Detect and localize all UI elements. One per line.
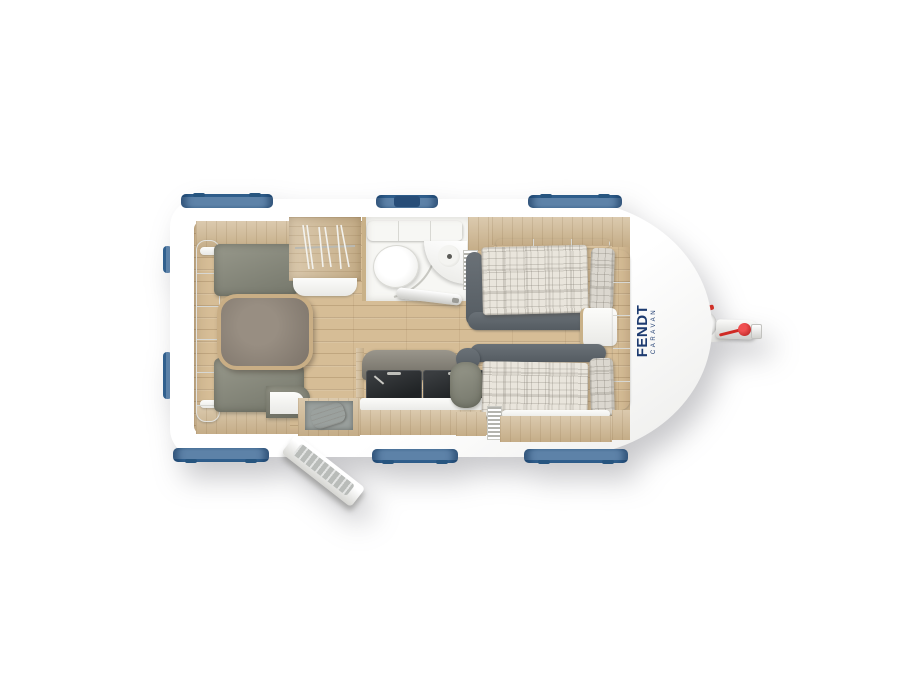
window-hinge-icon xyxy=(602,460,614,464)
window-bottom-front xyxy=(524,449,628,463)
washroom-top-cabinet xyxy=(367,221,463,241)
red-coupling-knob xyxy=(738,323,751,336)
corner-cabinet-bottom-front xyxy=(612,410,630,440)
brand-subtitle: CARAVAN xyxy=(651,308,658,354)
pillow-bed-bottom xyxy=(589,358,615,417)
rooflight-glass-icon xyxy=(394,196,420,207)
window-hinge-icon xyxy=(249,193,261,197)
caravan-floorplan-scene: FENDT CARAVAN xyxy=(0,0,906,680)
window-top-front xyxy=(528,195,622,208)
dining-table xyxy=(217,294,313,370)
rooflight-window-mid xyxy=(376,195,438,208)
clothes-hangers-icon xyxy=(289,217,361,281)
brand-logo: FENDT CARAVAN xyxy=(618,286,674,376)
overhead-lockers-bed-bottom xyxy=(500,416,612,442)
window-hinge-icon xyxy=(598,194,610,198)
bedside-console xyxy=(580,308,617,346)
window-hinge-icon xyxy=(540,194,552,198)
window-top-rear xyxy=(181,194,273,208)
window-bottom-mid xyxy=(372,449,458,463)
lid-handle-icon xyxy=(387,372,401,375)
single-bed-top-mattress xyxy=(481,245,589,316)
window-bottom-rear xyxy=(173,448,269,462)
bed-bottom-armrest xyxy=(450,362,482,408)
window-hinge-icon xyxy=(245,459,257,463)
bed-base-front-left xyxy=(456,412,486,436)
wardrobe-shelf xyxy=(293,278,357,296)
washbasin-drain-icon xyxy=(447,254,452,259)
pillow-bed-top xyxy=(589,248,615,311)
bed-bottom-bolster-front xyxy=(470,344,606,362)
brand-name: FENDT xyxy=(635,305,650,358)
bedroom-shelf-top-left xyxy=(468,217,494,251)
window-hinge-icon xyxy=(193,193,205,197)
faucet-icon xyxy=(374,375,384,384)
coupling-tip xyxy=(751,324,762,339)
window-hinge-icon xyxy=(382,460,394,464)
window-hinge-icon xyxy=(436,460,448,464)
corner-cabinet-top-front xyxy=(612,217,630,247)
wardrobe-cabinet xyxy=(289,217,361,281)
caravan-vehicle: FENDT CARAVAN xyxy=(0,0,906,680)
door-handle-icon xyxy=(452,298,460,304)
window-hinge-icon xyxy=(185,459,197,463)
window-hinge-icon xyxy=(538,460,550,464)
